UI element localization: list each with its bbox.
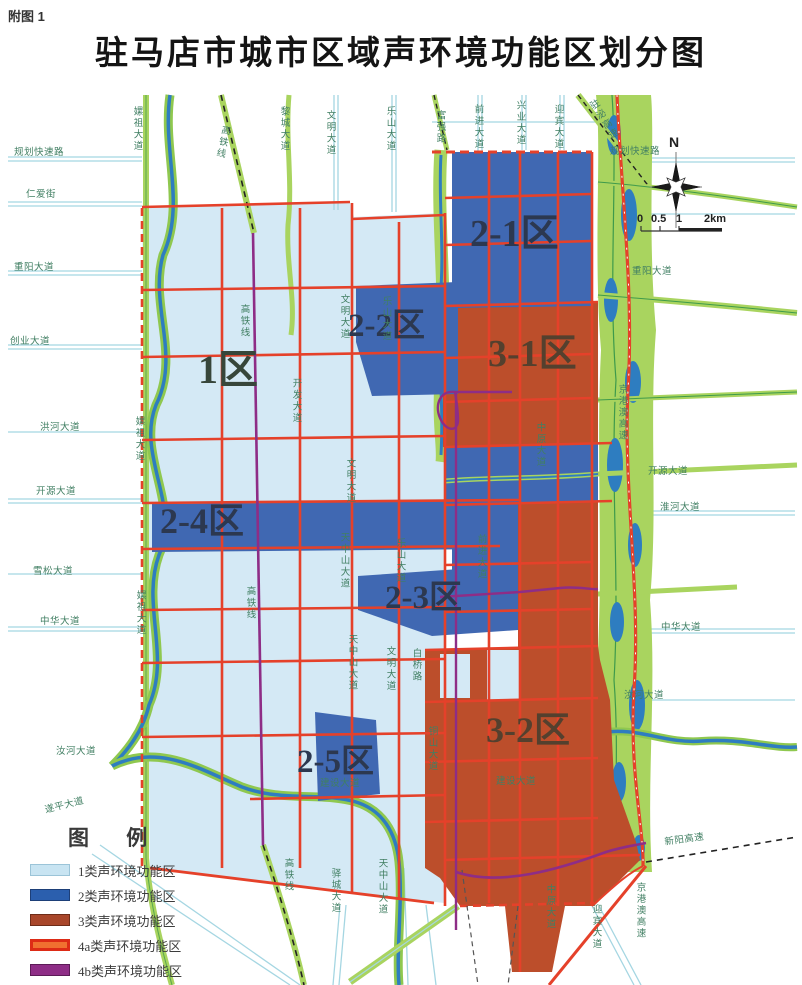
zone1-swatch-icon (30, 864, 70, 876)
scale-tick: 1 (676, 213, 682, 225)
road-label: 天中山大道 (346, 634, 356, 692)
road-label: 乐山大道 (384, 106, 394, 152)
page-title: 驻马店市城市区域声环境功能区划分图 (0, 26, 802, 74)
road-label: 文明大道 (324, 110, 334, 156)
road-label: 铜山大道 (426, 726, 436, 772)
road-label: 重阳大道 (14, 263, 54, 273)
zone-label-2-4: 2-4区 (160, 503, 244, 539)
road-label: 淮河大道 (660, 503, 700, 513)
road-label: 嫘祖大道 (131, 106, 141, 152)
road-label: 汝河大道 (624, 691, 664, 701)
road-label: 前进大道 (472, 104, 482, 150)
road-label: 开发大道 (290, 378, 300, 424)
scale-tick: 0 (637, 213, 643, 225)
zone-label-1: 1区 (198, 350, 258, 390)
zone3-swatch-icon (30, 914, 70, 926)
legend-item-label: 1类声环境功能区 (78, 861, 176, 880)
north-label: N (669, 134, 679, 150)
zone-label-3-1: 3-1区 (488, 335, 577, 373)
road-label: 天中山大道 (376, 858, 386, 916)
road-label: 文明大道 (344, 458, 354, 504)
legend-item: 4a类声环境功能区 (30, 938, 230, 952)
figure-tag: 附图 1 (8, 6, 45, 25)
road-label: 建设大道 (496, 777, 536, 787)
road-label: 文明大道 (384, 646, 394, 692)
legend-item-label: 3类声环境功能区 (78, 911, 176, 930)
legend-item-label: 2类声环境功能区 (78, 886, 176, 905)
road-label: 中原大道 (544, 884, 554, 930)
road-label: 文明大道 (338, 294, 348, 340)
map-legend: 图 例 1类声环境功能区 2类声环境功能区 3类声环境功能区 4a类声环境功能区… (30, 822, 230, 977)
legend-item-label: 4a类声环境功能区 (78, 936, 181, 955)
road-label: 前进大道 (475, 534, 485, 580)
zone4b-swatch-icon (30, 964, 70, 976)
road-label: 迎宾大道 (552, 104, 562, 150)
scale-tick: 0.5 (651, 213, 666, 225)
zone2-swatch-icon (30, 889, 70, 901)
road-label: 高铁线 (244, 586, 254, 621)
zone4a-swatch-icon (30, 939, 70, 951)
road-label: 创业大道 (10, 337, 50, 347)
legend-item: 1类声环境功能区 (30, 863, 230, 877)
road-label: 仁爱街 (26, 190, 56, 200)
legend-item: 3类声环境功能区 (30, 913, 230, 927)
road-label: 中华大道 (661, 623, 701, 633)
road-label: 洪河大道 (40, 423, 80, 433)
scale-tick: 2km (704, 213, 726, 225)
road-label: 乐山大道 (380, 296, 390, 342)
road-label: 京港澳高速 (634, 882, 644, 940)
zone-label-3-2: 3-2区 (486, 712, 570, 748)
scale-bar (641, 226, 722, 232)
road-label: 高铁线 (282, 858, 292, 893)
road-label: 驿城大道 (329, 868, 339, 914)
legend-item: 2类声环境功能区 (30, 888, 230, 902)
road-label: 高铁线 (238, 304, 248, 339)
legend-title: 图 例 (68, 822, 230, 852)
road-label: 中华大道 (40, 617, 80, 627)
road-label: 京港澳高速 (616, 384, 626, 442)
legend-item-label: 4b类声环境功能区 (78, 961, 182, 980)
road-label: 迎宾大道 (590, 904, 600, 950)
road-label: 嫘祖大道 (133, 416, 143, 462)
legend-item: 4b类声环境功能区 (30, 963, 230, 977)
road-label: 雪松大道 (33, 567, 73, 577)
road-label: 白桥路 (410, 648, 420, 683)
road-label: 天中山大道 (338, 532, 348, 590)
road-label: 嫘祖大道 (134, 590, 144, 636)
zone-label-2-5: 2-5区 (297, 746, 374, 779)
road-label: 乐山大道 (394, 538, 404, 584)
road-label: 富强路 (434, 110, 444, 145)
road-label: 兴业大道 (514, 100, 524, 146)
road-label: 开源大道 (36, 487, 76, 497)
zoning-map-page: 附图 1 驻马店市城市区域声环境功能区划分图 N 0 0.5 1 2km 1区2… (0, 0, 802, 985)
road-label: 规划快速路 (610, 147, 660, 157)
road-label: 汝河大道 (56, 747, 96, 757)
zone-1-pocket (487, 650, 520, 700)
road-label: 中原大道 (534, 422, 544, 468)
road-label: 黎城大道 (278, 106, 288, 152)
road-label: 规划快速路 (14, 148, 64, 158)
road-label: 建设大道 (320, 779, 360, 789)
road-label: 重阳大道 (632, 267, 672, 277)
zone-label-2-3: 2-3区 (385, 582, 462, 615)
zone-label-2-1: 2-1区 (470, 215, 559, 253)
road-label: 开源大道 (648, 467, 688, 477)
